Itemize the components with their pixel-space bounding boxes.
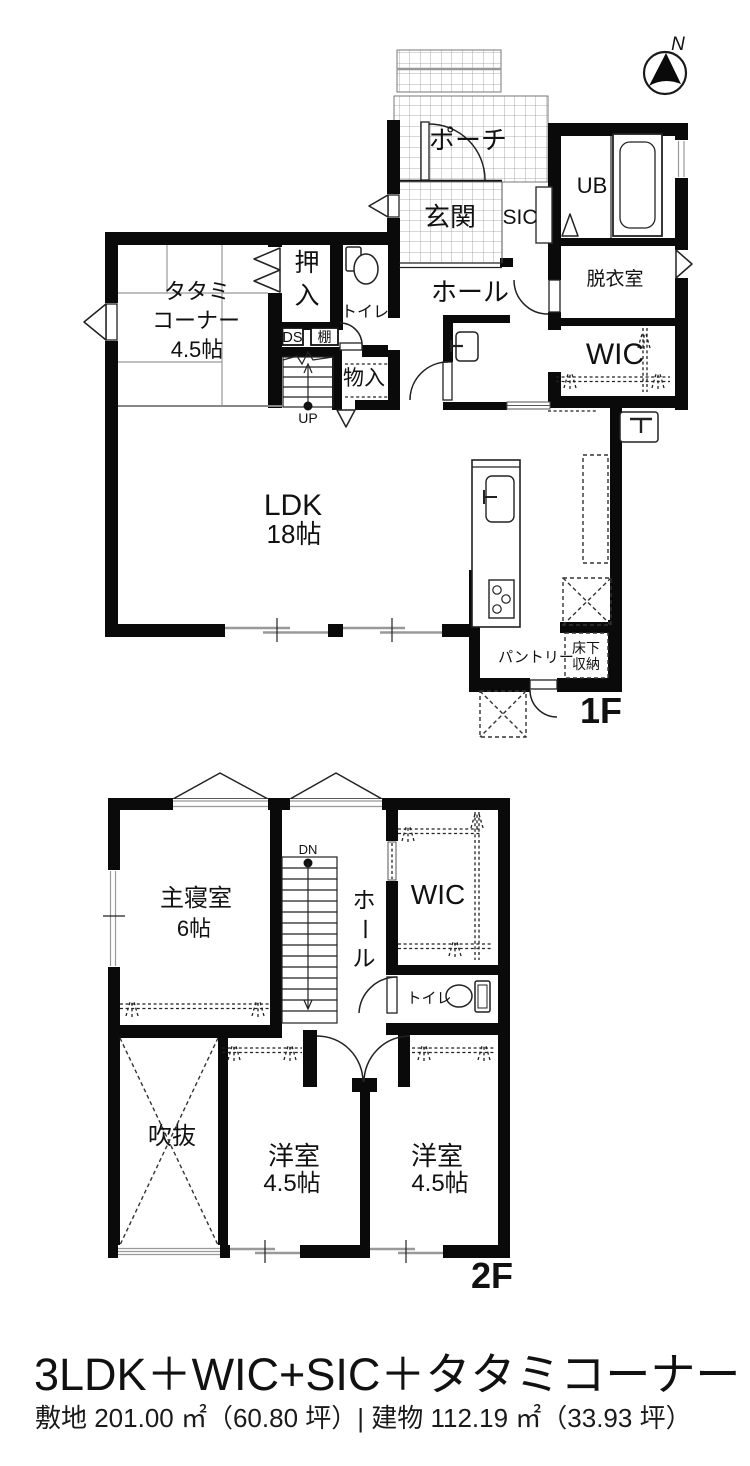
room-label-wic1: WIC (586, 338, 644, 371)
floor2-label: 2F (471, 1255, 513, 1296)
room-label-ldk-size: 18帖 (267, 519, 322, 549)
stove-icon (489, 580, 514, 618)
stairs-up: UP (283, 352, 333, 426)
room-label-west2-size: 4.5帖 (411, 1170, 468, 1197)
terrace-box (480, 691, 526, 737)
room-label-hall2-2: ー (352, 918, 378, 941)
room-label-toilet1: トイレ (341, 304, 389, 321)
floor1-plan: UP (84, 50, 692, 737)
room-label-underfloor-2: 収納 (572, 656, 600, 672)
plan-title: 3LDK＋WIC+SIC＋タタミコーナー (34, 1338, 734, 1403)
genkan-step (399, 263, 502, 268)
floorplan-page: N (0, 0, 750, 1466)
room-label-west2: 洋室 (411, 1141, 463, 1171)
kitchen-sink-icon (486, 476, 514, 522)
stairs-up-label: UP (298, 410, 317, 426)
kitchen-counter (472, 460, 520, 627)
room-label-ldk: LDK (264, 489, 322, 522)
room-label-wic2: WIC (411, 879, 465, 910)
room-label-shelf: 棚 (318, 329, 332, 345)
room-label-master-size: 6帖 (177, 916, 211, 941)
room-label-ub: UB (577, 173, 608, 198)
toilet2-icon (446, 981, 490, 1012)
porch-tiles (394, 50, 548, 182)
room-label-genkan: 玄関 (424, 202, 476, 232)
stairs-down-label: DN (299, 842, 318, 857)
room-label-hall2-3: ル (353, 945, 376, 971)
room-label-ds: DS (282, 330, 302, 346)
room-label-monoire: 物入 (343, 367, 385, 390)
floor2-plan: DN (103, 773, 513, 1296)
compass-north-label: N (671, 34, 685, 55)
stairs-down: DN (282, 842, 337, 1023)
master-hanger-rail (120, 1001, 270, 1017)
room-label-west1-size: 4.5帖 (263, 1170, 320, 1197)
entrance-door (421, 122, 429, 180)
room-label-hall1: ホール (431, 277, 509, 307)
toilet-icon (346, 247, 378, 284)
floor1-label: 1F (580, 690, 622, 731)
closet-right-hanger (412, 1045, 496, 1061)
room-label-tatami-1: タタミ (164, 279, 230, 304)
washbasin-icon (451, 332, 478, 361)
room-label-pantry: パントリー (498, 649, 574, 666)
compass-icon: N (644, 34, 686, 94)
room-label-porch: ポーチ (429, 125, 507, 155)
room-label-oshiire-1: 押 (294, 249, 319, 277)
room-label-oshiire-2: 入 (294, 282, 319, 310)
outdoor-sink-icon (620, 412, 658, 442)
refrigerator-space (583, 455, 608, 563)
room-label-toilet2: トイレ (406, 990, 451, 1007)
equipment-box (563, 578, 611, 625)
room-label-underfloor-1: 床下 (572, 640, 600, 656)
room-label-tatami-2: コーナー (152, 308, 240, 333)
room-label-tatami-3: 4.5帖 (171, 337, 224, 362)
room-label-void: 吹抜 (148, 1123, 196, 1150)
area-info: 敷地 201.00 ㎡（60.80 坪）| 建物 112.19 ㎡（33.93 … (35, 1398, 735, 1435)
room-label-master: 主寝室 (160, 885, 232, 912)
room-label-sic: SIC (502, 206, 537, 229)
room-label-hall2-1: ホ (353, 887, 376, 913)
floorplan-svg: N (0, 0, 750, 1320)
room-label-datsui: 脱衣室 (586, 268, 643, 290)
room-label-west1: 洋室 (268, 1141, 320, 1171)
closet-left-hanger (222, 1045, 302, 1061)
bathtub-icon (611, 134, 662, 238)
